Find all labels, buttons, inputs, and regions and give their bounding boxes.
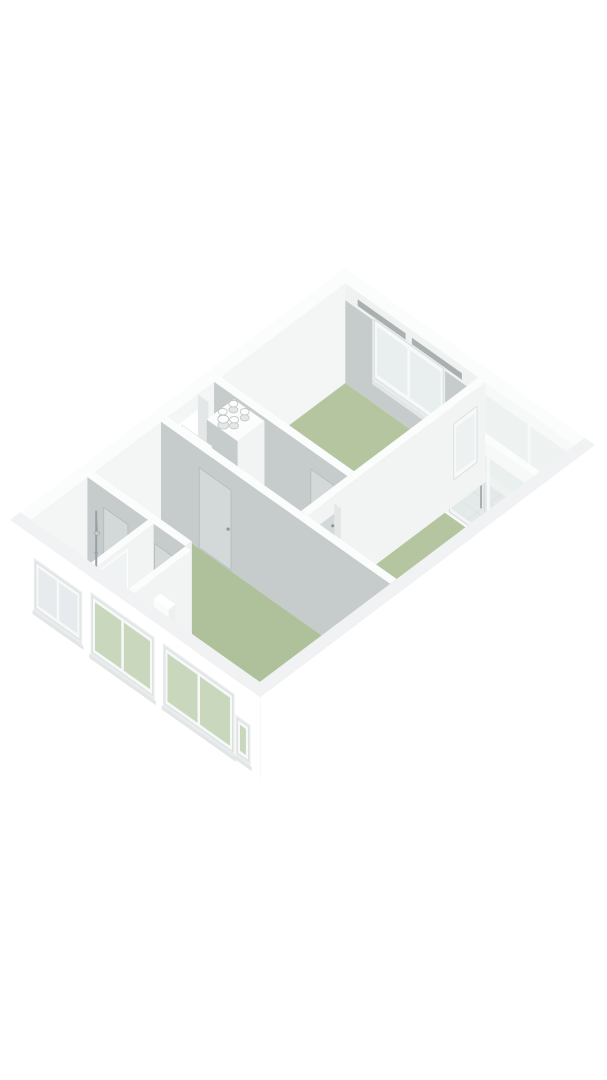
pipe (229, 406, 238, 412)
window-mullion (121, 619, 124, 673)
pipe (230, 422, 239, 428)
door-handle (331, 524, 334, 527)
floorplan-image (0, 0, 607, 1080)
window-mullion (198, 673, 201, 727)
door-handle (227, 528, 230, 531)
pipe-top (218, 415, 229, 423)
floorplan-canvas (0, 0, 607, 1080)
shower-head (95, 531, 100, 535)
pipe-top (229, 400, 238, 406)
shower-valve (95, 551, 98, 554)
window-glass (240, 725, 246, 755)
pipe (240, 414, 249, 420)
pipe-top (218, 408, 227, 414)
window-mullion (57, 579, 60, 623)
pipe-top (240, 408, 249, 414)
pipe-top (230, 416, 239, 422)
